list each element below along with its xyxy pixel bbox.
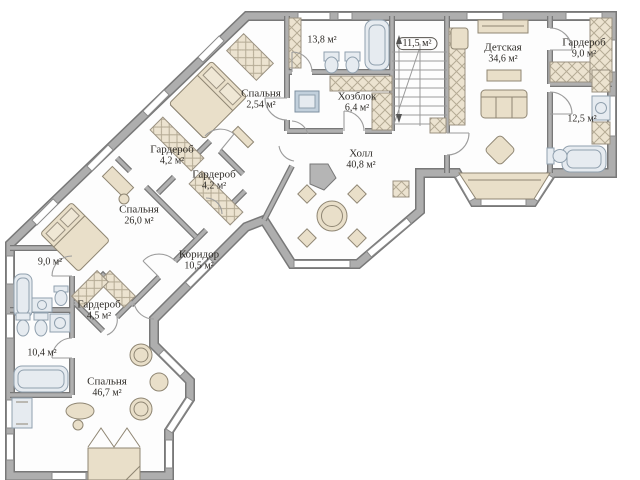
room-label-bedroom-w: Спальня 26,0 м² (119, 205, 159, 228)
room-label-bath-w1: 9,0 м² (38, 258, 62, 269)
room-label-hall: Холл 40,8 м² (346, 149, 375, 172)
room-label-wardrobe-w1: Гардероб 4,2 м² (150, 145, 193, 168)
armchair (130, 398, 152, 420)
armchair (451, 28, 468, 49)
side-table (150, 373, 168, 391)
stool (119, 194, 129, 204)
room-label-bath-east: 12,5 м² (567, 115, 596, 126)
sofa (481, 90, 527, 118)
room-label-bedroom-n: Спальня 2,54 м² (241, 89, 281, 112)
coffee-table (487, 70, 521, 81)
ottoman (66, 403, 94, 419)
stool (73, 420, 83, 430)
floor-plan: 13,8 м² 11,5 м² Детская 34,6 м² Гардероб… (0, 0, 640, 480)
bed (88, 448, 140, 480)
room-label-bath-w2: 10,4 м² (27, 349, 56, 360)
room-label-bath-top: 13,8 м² (307, 36, 336, 47)
room-label-stairs: 11,5 м² (397, 38, 438, 50)
room-label-corridor: Коридор 10,5 м² (179, 250, 219, 273)
room-label-wardrobe-sw: Гардероб 4,5 м² (77, 300, 120, 323)
armchair (130, 344, 152, 366)
room-label-utility: Хозблок 6,4 м² (338, 92, 377, 115)
room-label-bedroom-s: Спальня 46,7 м² (87, 377, 127, 400)
room-label-wardrobe-w2: Гардероб 4,2 м² (192, 170, 235, 193)
room-label-nursery: Детская 34,6 м² (484, 43, 521, 66)
room-label-wardrobe-ne: Гардероб 9,0 м² (562, 38, 605, 61)
floor-plan-drawing (0, 0, 640, 480)
